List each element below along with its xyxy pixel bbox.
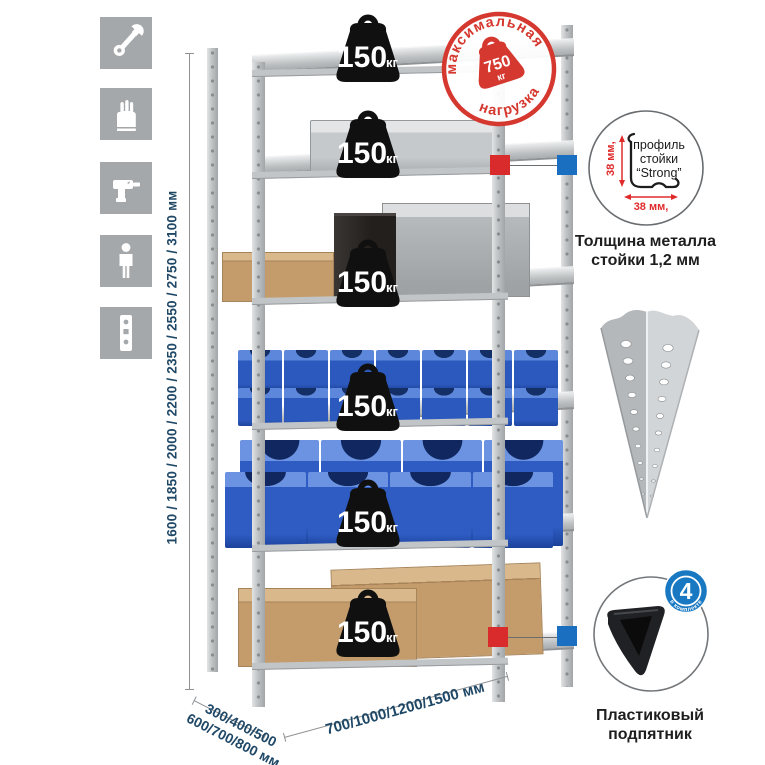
blue-bin [514,350,558,390]
profile-caption-line1: Толщина металла [558,232,733,251]
max-load-stamp: максимальная нагрузка 750 кг [434,4,564,134]
gloves-icon-glyph [107,95,145,133]
foot-caption-line2: подпятник [560,725,740,744]
connector-line-top [510,165,558,166]
red-marker-bottom [488,627,508,647]
weight-unit: кг [386,520,399,535]
foot-caption-line1: Пластиковый [560,706,740,725]
foot-caption: Пластиковый подпятник [560,706,740,744]
profile-dim-vertical: 38 мм, [605,141,617,176]
weight-value: 150 [337,616,387,649]
drill-icon [100,162,152,214]
connector-line-bottom [508,637,558,638]
weight-unit: кг [386,151,399,166]
weight-unit: кг [386,280,399,295]
weight-badge-shelf-5: 150кг [316,479,420,557]
drill-icon-glyph [106,168,146,208]
weight-badge-shelf-1: 150кг [316,14,420,92]
rack-post-back-left [207,48,218,672]
weight-badge-shelf-6: 150кг [316,589,420,667]
height-dimension-label: 1600 / 1850 / 2000 / 2200 / 2350 / 2550 … [165,43,180,693]
profile-label-3: “Strong” [636,166,681,180]
blue-marker-bottom [557,626,577,646]
weight-value: 150 [337,390,387,423]
rack-profile-icon-glyph [107,312,145,354]
weight-unit: кг [386,630,399,645]
profile-label-1: профиль [633,138,685,152]
profile-label-2: стойки [640,152,678,166]
quantity-badge: 4 в комплекте [663,568,709,614]
wrench-icon-glyph [107,24,145,62]
red-marker-top [490,155,510,175]
weight-unit: кг [386,404,399,419]
blue-bin-large [225,472,306,548]
person-icon-glyph [107,241,145,281]
weight-value: 150 [337,506,387,539]
weight-value: 150 [337,41,387,74]
quantity-badge-value: 4 [680,578,693,604]
blue-bin-large [473,472,554,548]
weight-badge-shelf-3: 150кг [316,239,420,317]
rack-profile-icon [100,307,152,359]
profile-caption: Толщина металла стойки 1,2 мм [558,232,733,270]
blue-marker-top [557,155,577,175]
infographic-canvas: 1600 / 1850 / 2000 / 2200 / 2350 / 2550 … [0,0,765,765]
weight-value: 150 [337,266,387,299]
person-icon [100,235,152,287]
height-dimension-line [189,53,190,690]
weight-value: 150 [337,137,387,170]
profile-caption-line2: стойки 1,2 мм [558,251,733,270]
angle-post-image [595,300,705,530]
profile-callout-circle: 38 мм, 38 мм, профиль стойки “Strong” [586,108,706,228]
blue-bin [468,350,512,390]
weight-badge-shelf-4: 150кг [316,363,420,441]
wrench-icon [100,17,152,69]
rack-post-front-left [252,62,265,707]
profile-dim-horizontal: 38 мм, [634,201,669,213]
weight-unit: кг [386,55,399,70]
gloves-icon [100,88,152,140]
weight-badge-shelf-2: 150кг [316,110,420,188]
blue-bin [514,388,558,426]
blue-bin [422,350,466,390]
